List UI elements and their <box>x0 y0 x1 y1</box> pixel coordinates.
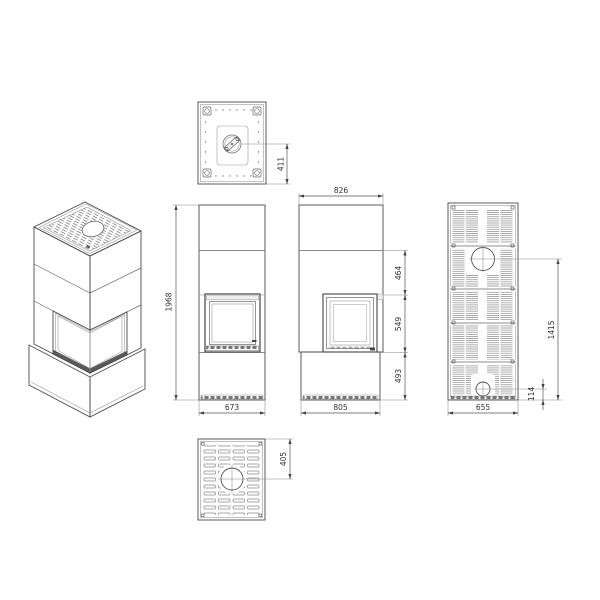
dim-label-405: 405 <box>279 452 288 467</box>
dimension-655: 655 <box>448 400 518 416</box>
dim-label-493: 493 <box>394 369 403 384</box>
dimension-405: 405 <box>265 439 293 479</box>
dim-label-1968: 1968 <box>165 292 174 311</box>
dimension-805: 805 <box>301 400 380 416</box>
dim-label-655: 655 <box>476 403 491 412</box>
dim-label-1415: 1415 <box>547 320 556 339</box>
dimension-673: 673 <box>199 400 265 416</box>
door-handle-front <box>252 340 257 342</box>
dim-label-826: 826 <box>334 186 349 195</box>
dimension-1968: 1968 <box>165 205 200 400</box>
side-view: 826 464 549 493 805 <box>299 186 408 416</box>
rear-plinth-grille <box>451 396 515 400</box>
isometric-view <box>29 195 150 417</box>
front-plinth-grille <box>201 395 263 399</box>
dimension-826: 826 <box>299 186 383 205</box>
rear-view: 1415 114 655 <box>448 203 562 416</box>
bottom-view: 405 <box>198 439 293 520</box>
dimension-1415: 1415 <box>518 259 562 400</box>
dim-label-411: 411 <box>277 157 286 172</box>
technical-drawing-canvas: 411 1968 673 <box>0 0 600 600</box>
top-view: 411 <box>198 102 290 184</box>
side-firebox-window <box>323 294 383 352</box>
front-view: 1968 673 <box>165 205 266 416</box>
dim-label-673: 673 <box>225 403 240 412</box>
rear-ventilation-grille <box>450 209 516 397</box>
dimension-114: 114 <box>527 379 543 410</box>
front-firebox-window <box>205 294 260 352</box>
dimension-464-549-493: 464 549 493 <box>377 251 408 401</box>
door-handle-side <box>370 348 375 351</box>
dim-label-114: 114 <box>527 387 536 402</box>
dim-label-549: 549 <box>394 317 403 332</box>
dim-label-464: 464 <box>394 266 403 281</box>
flue-spigot-top <box>217 126 248 165</box>
dim-label-805: 805 <box>333 403 348 412</box>
fireplace-dimension-drawing: 411 1968 673 <box>0 0 600 600</box>
dimension-411: 411 <box>241 144 290 184</box>
side-plinth-grille <box>303 395 378 399</box>
